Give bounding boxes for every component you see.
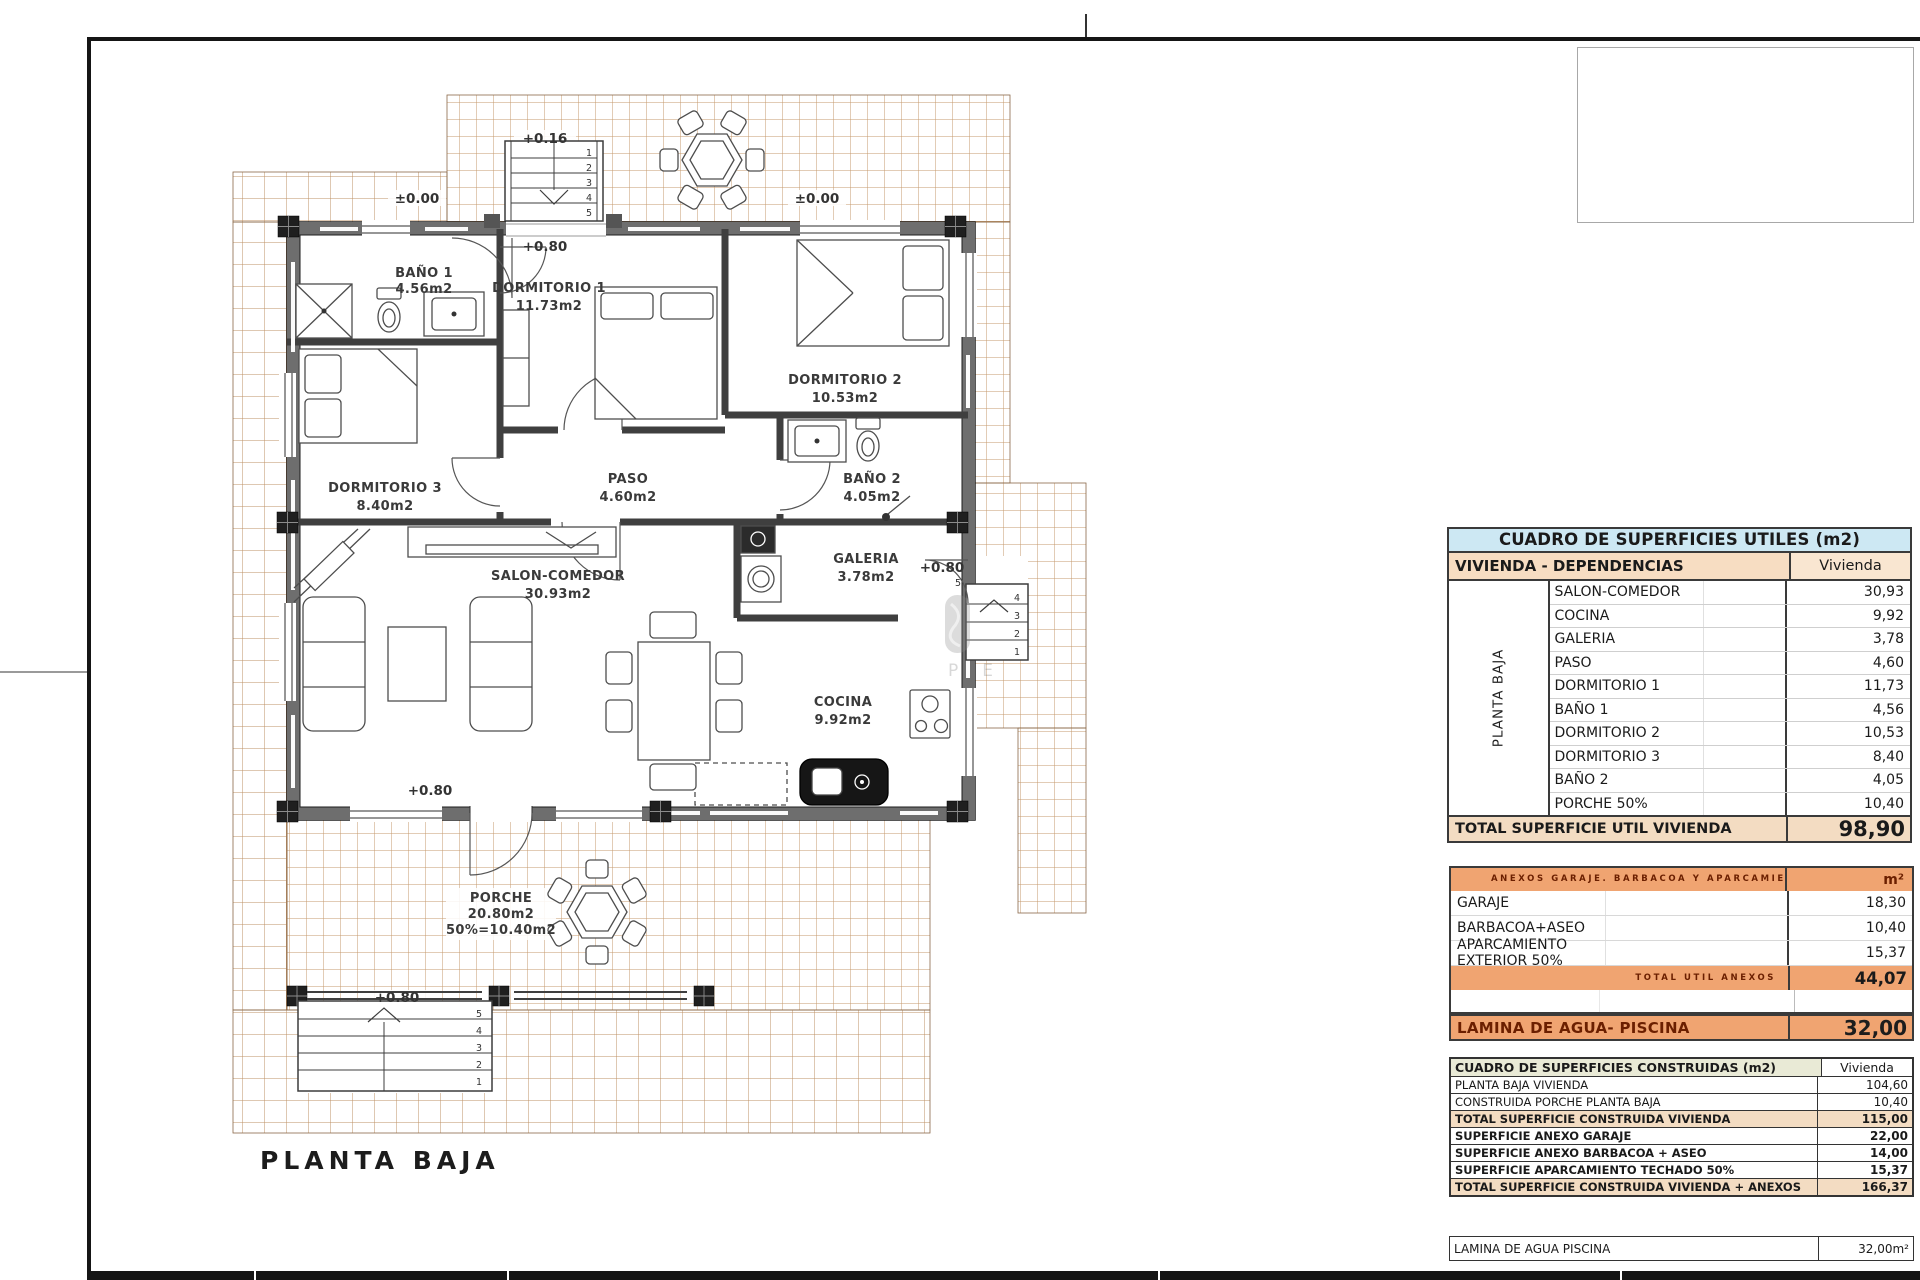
row-lamina-piscina-bottom: LAMINA DE AGUA PISCINA 32,00m² xyxy=(1449,1236,1914,1261)
sink-bano2 xyxy=(788,420,846,462)
entrance-stair-numbers: 1 2 3 4 5 xyxy=(586,148,592,219)
table-superficies-construidas: CUADRO DE SUPERFICIES CONSTRUIDAS (m2) V… xyxy=(1449,1057,1914,1197)
svg-text:1: 1 xyxy=(1014,647,1020,658)
table-row: DORMITORIO 111,73 xyxy=(1550,675,1910,699)
sheet-left-tick xyxy=(0,671,87,673)
table-row: PLANTA BAJA VIVIENDA104,60 xyxy=(1451,1076,1912,1093)
side-label-planta-baja: PLANTA BAJA xyxy=(1449,581,1550,815)
sheet-top-tick xyxy=(1085,14,1087,37)
table-utiles-body: PLANTA BAJA SALON-COMEDOR30,93 COCINA9,9… xyxy=(1449,581,1910,815)
level-galeria: +0.80 xyxy=(920,560,965,576)
total-util-value: 98,90 xyxy=(1786,817,1910,841)
page-title: PLANTA BAJA xyxy=(260,1146,500,1175)
room-label-paso: PASO xyxy=(608,472,648,487)
table-row: BAÑO 24,05 xyxy=(1550,769,1910,793)
svg-text:10.53m2: 10.53m2 xyxy=(812,391,879,406)
table-row: APARCAMIENTO EXTERIOR 50%15,37 xyxy=(1451,941,1912,966)
svg-text:4: 4 xyxy=(476,1026,482,1037)
level-ground-left: ±0.00 xyxy=(395,191,440,207)
svg-text:4: 4 xyxy=(586,193,592,204)
bed-dorm1 xyxy=(595,287,717,419)
svg-text:4: 4 xyxy=(1014,593,1020,604)
table-utiles-subheader-row: VIVIENDA - DEPENDENCIAS Vivienda xyxy=(1449,553,1910,581)
washer-galeria xyxy=(741,556,781,602)
table-anexos-header: ANEXOS GARAJE. BARBACOA Y APARCAMIENTO m… xyxy=(1451,868,1912,891)
svg-text:20.80m2: 20.80m2 xyxy=(468,907,535,922)
level-porch-bottom: +0.80 xyxy=(375,990,420,1006)
room-label-dorm3: DORMITORIO 3 xyxy=(328,481,442,496)
unit-m2: m² xyxy=(1785,868,1912,891)
svg-text:3.78m2: 3.78m2 xyxy=(837,570,894,585)
plan-sheet: 1 2 3 4 5 5 4 3 2 1 5 4 3 2 xyxy=(0,0,1920,1280)
column-header-vivienda: Vivienda xyxy=(1789,553,1910,579)
sofa-left xyxy=(303,597,365,731)
svg-text:1: 1 xyxy=(476,1077,482,1088)
svg-text:PE: PE xyxy=(948,661,1017,681)
svg-text:2: 2 xyxy=(1014,629,1020,640)
room-label-cocina: COCINA xyxy=(814,695,872,710)
shower-bano1 xyxy=(296,284,352,338)
level-entrance: +0.80 xyxy=(523,239,568,255)
tv-cabinet xyxy=(408,527,616,557)
level-entry-upper: +0.16 xyxy=(523,131,568,147)
total-anexos-value: 44,07 xyxy=(1788,966,1912,990)
table-row: DORMITORIO 38,40 xyxy=(1550,746,1910,770)
bottom-bar-tick xyxy=(507,1271,509,1280)
room-label-salon: SALON-COMEDOR xyxy=(491,569,625,584)
empty-row xyxy=(1451,990,1912,1012)
svg-text:8.40m2: 8.40m2 xyxy=(356,499,413,514)
table-utiles-total-row: TOTAL SUPERFICIE UTIL VIVIENDA 98,90 xyxy=(1449,815,1910,841)
toilet-bano2 xyxy=(856,418,880,461)
level-ground-right: ±0.00 xyxy=(795,191,840,207)
room-label-dorm1: DORMITORIO 1 xyxy=(492,281,606,296)
table-row: SUPERFICIE ANEXO GARAJE22,00 xyxy=(1451,1127,1912,1144)
bed-dorm2 xyxy=(797,240,949,346)
room-label-dorm2: DORMITORIO 2 xyxy=(788,373,902,388)
svg-text:30.93m2: 30.93m2 xyxy=(525,587,592,602)
table-row: COCINA9,92 xyxy=(1550,605,1910,629)
sink-bano1 xyxy=(424,292,484,336)
svg-text:9.92m2: 9.92m2 xyxy=(814,713,871,728)
table-row: SALON-COMEDOR30,93 xyxy=(1550,581,1910,605)
garden-stair xyxy=(298,1001,492,1091)
room-label-galeria: GALERIA xyxy=(833,552,899,567)
sheet-border-left xyxy=(87,37,91,1272)
svg-text:3: 3 xyxy=(476,1043,482,1054)
hob-cocina xyxy=(910,690,950,738)
sheet-border-bottom xyxy=(87,1271,1920,1280)
table-row: DORMITORIO 210,53 xyxy=(1550,722,1910,746)
bottom-bar-tick xyxy=(254,1271,256,1280)
svg-text:5: 5 xyxy=(476,1009,482,1020)
entrance-opening xyxy=(506,219,606,238)
table-row-total: TOTAL SUPERFICIE CONSTRUIDA VIVIENDA + A… xyxy=(1451,1178,1912,1195)
table-row: PORCHE 50%10,40 xyxy=(1550,793,1910,816)
svg-text:4.05m2: 4.05m2 xyxy=(843,490,900,505)
boiler-galeria xyxy=(741,526,775,553)
table-row: GALERIA3,78 xyxy=(1550,628,1910,652)
piscina-bottom-value: 32,00m² xyxy=(1818,1237,1913,1260)
table-construidas-header: CUADRO DE SUPERFICIES CONSTRUIDAS (m2) V… xyxy=(1451,1059,1912,1076)
table-anexos: ANEXOS GARAJE. BARBACOA Y APARCAMIENTO m… xyxy=(1449,866,1914,1014)
column-header-vivienda: Vivienda xyxy=(1821,1059,1912,1076)
table-row: SUPERFICIE ANEXO BARBACOA + ASEO14,00 xyxy=(1451,1144,1912,1161)
svg-text:2: 2 xyxy=(476,1060,482,1071)
bottom-bar-tick xyxy=(1158,1271,1160,1280)
svg-text:5: 5 xyxy=(955,578,961,589)
table-row: SUPERFICIE APARCAMIENTO TECHADO 50%15,37 xyxy=(1451,1161,1912,1178)
table-superficies-utiles: CUADRO DE SUPERFICIES UTILES (m2) VIVIEN… xyxy=(1447,527,1912,843)
svg-text:5: 5 xyxy=(586,208,592,219)
table-row: PASO4,60 xyxy=(1550,652,1910,676)
level-porch-top: +0.80 xyxy=(408,783,453,799)
counter-cocina xyxy=(695,763,787,805)
room-label-bano2: BAÑO 2 xyxy=(843,471,901,487)
bottom-bar-tick xyxy=(1620,1271,1622,1280)
svg-text:50%=10.40m2: 50%=10.40m2 xyxy=(446,923,556,938)
table-row: BAÑO 14,56 xyxy=(1550,699,1910,723)
svg-text:3: 3 xyxy=(586,178,592,189)
svg-text:2: 2 xyxy=(586,163,592,174)
table-row: GARAJE18,30 xyxy=(1451,891,1912,916)
svg-text:3: 3 xyxy=(1014,611,1020,622)
room-label-bano1: BAÑO 1 xyxy=(395,265,453,281)
table-row-total: TOTAL SUPERFICIE CONSTRUIDA VIVIENDA115,… xyxy=(1451,1110,1912,1127)
sink-cocina xyxy=(800,759,888,805)
row-lamina-piscina: LAMINA DE AGUA- PISCINA 32,00 xyxy=(1449,1014,1914,1041)
svg-text:1: 1 xyxy=(586,148,592,159)
svg-text:11.73m2: 11.73m2 xyxy=(516,299,583,314)
svg-text:4.60m2: 4.60m2 xyxy=(599,490,656,505)
bed-dorm3 xyxy=(299,349,417,443)
svg-text:4.56m2: 4.56m2 xyxy=(395,282,452,297)
coffee-table xyxy=(388,627,446,701)
room-label-porche: PORCHE xyxy=(470,891,532,906)
piscina-value: 32,00 xyxy=(1788,1016,1912,1039)
subheader-label: VIVIENDA - DEPENDENCIAS xyxy=(1449,553,1789,579)
table-row: CONSTRUIDA PORCHE PLANTA BAJA10,40 xyxy=(1451,1093,1912,1110)
title-block-empty-box xyxy=(1577,47,1914,223)
table-utiles-title: CUADRO DE SUPERFICIES UTILES (m2) xyxy=(1449,529,1910,553)
sheet-border-top xyxy=(87,37,1920,41)
table-anexos-total-row: TOTAL UTIL ANEXOS 44,07 xyxy=(1451,966,1912,990)
sofa-right xyxy=(470,597,532,731)
